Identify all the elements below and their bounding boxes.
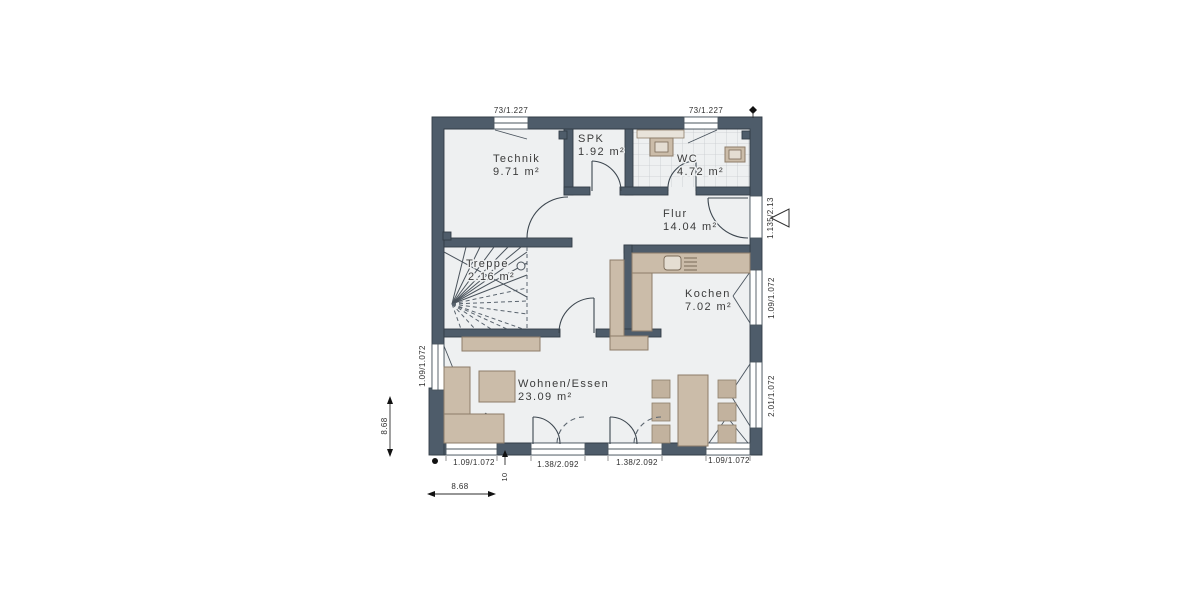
floor-plan: Technik 9.71 m² SPK 1.92 m² WC 4.72 m² F… xyxy=(0,0,1200,600)
room-label-spk: SPK xyxy=(578,133,604,145)
lowboard xyxy=(462,337,540,351)
dim-total-width: 8.68 xyxy=(451,482,468,491)
room-label-technik: Technik xyxy=(493,153,540,165)
dim-kitchen-window: 1.09/1.072 xyxy=(767,277,776,319)
dim-bottom-window-left: 1.09/1.072 xyxy=(453,458,495,467)
entry-door-opening xyxy=(750,196,762,238)
dim-bottom-window-right: 1.09/1.072 xyxy=(708,456,750,465)
terrace-door-1 xyxy=(531,443,585,455)
terrace-door-2 xyxy=(608,443,662,455)
corner-marker-bottom-left xyxy=(432,458,438,464)
dim-terrace-door-1: 1.38/2.092 xyxy=(537,460,579,469)
dim-total-height: 8.68 xyxy=(380,417,389,434)
dim-entry-door: 1.135/2.13 xyxy=(766,197,775,239)
width-dimension-arrow xyxy=(427,491,496,497)
dim-left-window: 1.09/1.072 xyxy=(418,345,427,387)
dim-step: 10 xyxy=(500,473,509,482)
room-label-kochen: Kochen xyxy=(685,288,731,300)
stair-post xyxy=(517,262,525,270)
wall-block-lower-left xyxy=(429,388,444,455)
dim-top-window-1: 73/1.227 xyxy=(494,106,528,115)
coffee-table xyxy=(479,371,515,402)
sink xyxy=(664,256,681,270)
wc-shelf xyxy=(637,130,684,138)
room-area-wc: 4.72 m² xyxy=(677,166,724,178)
dim-terrace-door-2: 1.38/2.092 xyxy=(616,458,658,467)
room-label-treppe: Treppe xyxy=(466,258,509,270)
room-area-wohnen: 23.09 m² xyxy=(518,391,573,403)
sideboard-hall-foot xyxy=(610,336,648,350)
dim-dining-window: 2.01/1.072 xyxy=(767,375,776,417)
room-area-flur: 14.04 m² xyxy=(663,221,718,233)
room-area-technik: 9.71 m² xyxy=(493,166,540,178)
room-area-kochen: 7.02 m² xyxy=(685,301,732,313)
room-label-flur: Flur xyxy=(663,208,688,220)
room-label-wc: WC xyxy=(677,153,698,165)
room-label-wohnen: Wohnen/Essen xyxy=(518,378,609,390)
corner-marker-top-right xyxy=(749,106,757,118)
room-area-treppe: 2.16 m² xyxy=(468,271,515,283)
dim-top-window-2: 73/1.227 xyxy=(689,106,723,115)
room-area-spk: 1.92 m² xyxy=(578,146,625,158)
dining-table xyxy=(678,375,708,446)
